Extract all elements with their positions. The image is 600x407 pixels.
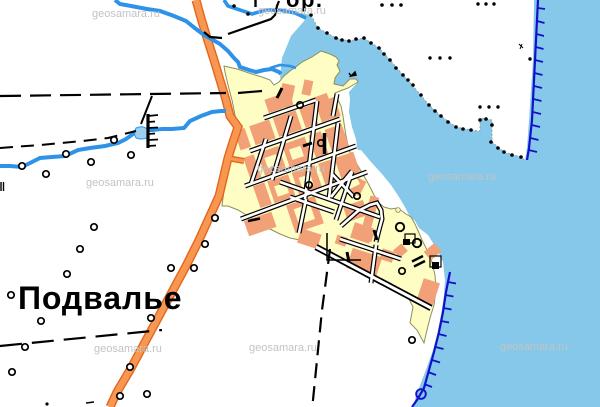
svg-text:geosamara.ru: geosamara.ru (86, 177, 154, 189)
svg-text:geosamara.ru: geosamara.ru (257, 163, 325, 175)
svg-text:geosamara.ru: geosamara.ru (92, 8, 160, 20)
svg-text:geosamara.ru: geosamara.ru (249, 342, 317, 354)
svg-text:geosamara.ru: geosamara.ru (94, 343, 162, 355)
svg-text:geosamara.ru: geosamara.ru (258, 5, 326, 17)
svg-text:geosamara.ru: geosamara.ru (500, 341, 568, 353)
svg-text:geosamara.ru: geosamara.ru (428, 171, 496, 183)
svg-text:Подвалье: Подвалье (18, 280, 182, 316)
